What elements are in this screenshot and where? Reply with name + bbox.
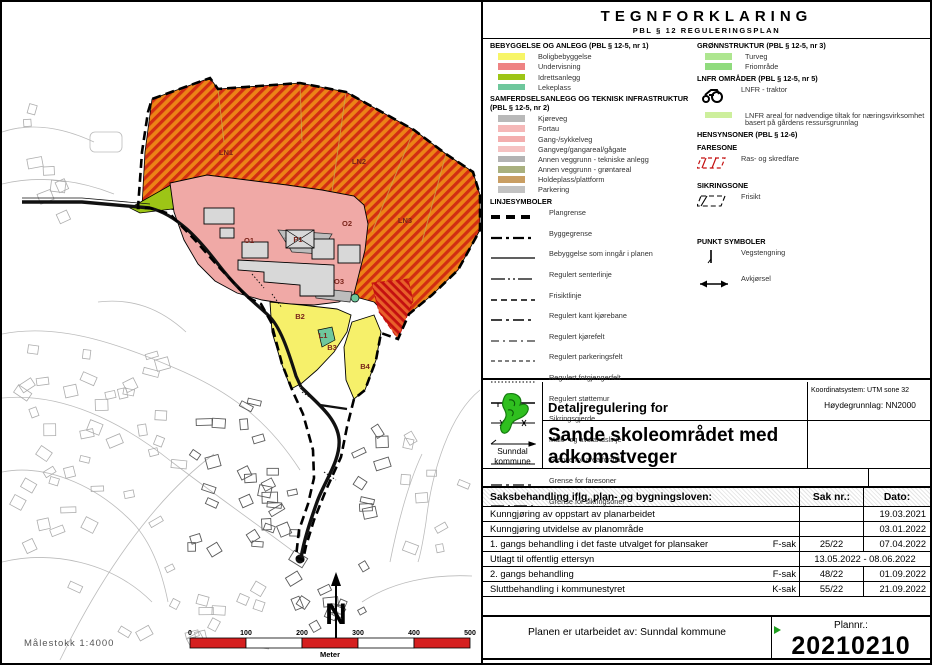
legend-item: Regulert kjørefelt xyxy=(490,333,696,351)
legend-item: Regulert senterlinje xyxy=(490,271,696,289)
scale-bar-segment xyxy=(302,638,358,648)
legend-section-heading: FARESONE xyxy=(697,144,927,153)
legend-section-heading: PUNKT SYMBOLER xyxy=(697,238,927,247)
legend-item-label: Gang-/sykkelveg xyxy=(538,136,592,144)
zone-label-L1: L1 xyxy=(319,331,328,340)
legend-section-heading: LNFR OMRÅDER (PBL § 12-5, nr 5) xyxy=(697,75,927,84)
case-date-range: 13.05.2022 - 08.06.2022 xyxy=(800,552,930,566)
case-desc: Sluttbehandling i kommunestyretK-sak xyxy=(483,582,800,596)
color-chip xyxy=(705,112,732,119)
legend-item: Regulert parkeringsfelt xyxy=(490,353,696,371)
faresone-icon xyxy=(697,155,731,178)
frisikt-icon xyxy=(697,193,731,216)
legend-item: Bebyggelse som inngår i planen xyxy=(490,250,696,268)
case-dato: 21.09.2022 xyxy=(864,582,930,596)
legend-item: Plangrense xyxy=(490,209,696,227)
case-desc: Kunngjøring av oppstart av planarbeidet xyxy=(483,507,800,521)
case-type: F-sak xyxy=(773,569,796,579)
zone-label-O3: O3 xyxy=(334,277,344,286)
header-desc: Saksbehandling iflg. plan- og bygningslo… xyxy=(483,488,800,506)
legend-item-label: Regulert fotgjengerfelt xyxy=(549,374,621,382)
color-chip xyxy=(498,176,525,183)
color-chip xyxy=(498,53,525,60)
line-sample-senterlinje xyxy=(490,271,536,289)
color-chip xyxy=(498,146,525,153)
color-chip xyxy=(498,136,525,143)
header-dato: Dato: xyxy=(864,488,930,506)
plannr-label: Plannr.: xyxy=(772,620,930,631)
legend-item: LNFR areal for nødvendige tiltak for nær… xyxy=(697,112,927,127)
scale-unit-label: Meter xyxy=(320,650,340,659)
color-chip xyxy=(705,63,732,70)
prepared-by: Planen er utarbeidet av: Sunndal kommune xyxy=(483,617,772,658)
legend-item: Undervisning xyxy=(490,63,696,71)
sunndal-kommune-logo xyxy=(493,390,533,440)
vegstengning-icon xyxy=(697,249,731,272)
legend-item: Gang-/sykkelveg xyxy=(490,136,696,144)
case-desc: Kunngjøring utvidelse av planområde xyxy=(483,522,800,536)
color-chip xyxy=(498,74,525,81)
color-chip xyxy=(498,63,525,70)
legend-item: Parkering xyxy=(490,186,696,194)
legend-item: Boligbebyggelse xyxy=(490,53,696,61)
case-table-row: Utlagt til offentlig ettersyn13.05.2022 … xyxy=(483,552,930,567)
map-panel: LN1LN2LN3O1O2O3P1B2B3B4L1 N Målestokk 1:… xyxy=(2,2,483,663)
scale-bar-segment xyxy=(414,638,470,648)
legend-item-label: Undervisning xyxy=(538,63,581,71)
zone-label-LN3: LN3 xyxy=(398,216,412,225)
footer: Planen er utarbeidet av: Sunndal kommune… xyxy=(483,615,930,660)
case-dato: 03.01.2022 xyxy=(864,522,930,536)
case-desc: Utlagt til offentlig ettersyn xyxy=(483,552,800,566)
case-table-row: 1. gangs behandling i det faste utvalget… xyxy=(483,537,930,552)
legend-item: Frisiktlinje xyxy=(490,292,696,310)
scale-text: Målestokk 1:4000 xyxy=(24,638,114,649)
color-chip xyxy=(498,186,525,193)
plan-type: Detaljregulering for xyxy=(548,400,803,415)
logo-text-line2: kommune xyxy=(483,457,542,467)
legend-section-heading: SAMFERDSELSANLEGG OG TEKNISK INFRASTRUKT… xyxy=(490,95,696,112)
legend-item-label: Regulert parkeringsfelt xyxy=(549,353,622,361)
header-saknr: Sak nr.: xyxy=(800,488,864,506)
legend-item: Gangveg/gangareal/gågate xyxy=(490,146,696,154)
line-sample-bebyggelse_plan xyxy=(490,250,536,268)
height-datum: Høydegrunnlag: NN2000 xyxy=(811,400,929,410)
color-chip xyxy=(498,166,525,173)
legend-item: Lekeplass xyxy=(490,84,696,92)
legend-item: LNFR - traktor xyxy=(697,86,927,109)
north-arrow: N xyxy=(325,572,347,647)
legend-item-label: Plangrense xyxy=(549,209,586,217)
line-sample-plangrense xyxy=(490,209,536,227)
logo-text: Sunndal kommune xyxy=(483,447,542,466)
scale-bar-segment xyxy=(246,638,302,648)
plan-sheet: LN1LN2LN3O1O2O3P1B2B3B4L1 N Målestokk 1:… xyxy=(0,0,932,665)
case-desc: 2. gangs behandlingF-sak xyxy=(483,567,800,581)
scale-tick-label: 0 xyxy=(188,630,192,637)
legend-item-label: Annen veggrunn - tekniske anlegg xyxy=(538,156,649,164)
line-sample-kjorefelt xyxy=(490,333,536,351)
north-label: N xyxy=(325,598,347,631)
zone-label-LN1: LN1 xyxy=(219,148,233,157)
legend-item: Annen veggrunn - tekniske anlegg xyxy=(490,156,696,164)
legend-item-label: Lekeplass xyxy=(538,84,571,92)
legend-header: TEGNFORKLARING PBL § 12 REGULERINGSPLAN xyxy=(483,2,930,39)
legend-item-label: Annen veggrunn - grøntareal xyxy=(538,166,631,174)
legend-item-label: Vegstengning xyxy=(741,249,785,257)
legend-item: Friområde xyxy=(697,63,927,71)
case-dato: 19.03.2021 xyxy=(864,507,930,521)
legend-item-label: Fortau xyxy=(538,125,559,133)
legend-column-right: GRØNNSTRUKTUR (PBL § 12-5, nr 3)TurvegFr… xyxy=(697,38,927,298)
case-saknr xyxy=(800,507,864,521)
legend-item-label: Regulert senterlinje xyxy=(549,271,612,279)
case-type: F-sak xyxy=(773,539,796,549)
legend-item-label: Grense for faresoner xyxy=(549,477,616,485)
scale-tick-label: 300 xyxy=(352,630,364,637)
legend-item-label: Parkering xyxy=(538,186,569,194)
legend-item: Turveg xyxy=(697,53,927,61)
legend-item: Annen veggrunn - grøntareal xyxy=(490,166,696,174)
legend-item-label: Boligbebyggelse xyxy=(538,53,592,61)
color-chip xyxy=(705,53,732,60)
legend-item-label: Avkjørsel xyxy=(741,275,771,283)
case-saknr: 48/22 xyxy=(800,567,864,581)
case-saknr xyxy=(800,522,864,536)
legend-item: Byggegrense xyxy=(490,230,696,248)
case-saknr: 25/22 xyxy=(800,537,864,551)
case-type: K-sak xyxy=(772,584,796,594)
legend-item-label: LNFR areal for nødvendige tiltak for nær… xyxy=(745,112,927,127)
case-dato: 01.09.2022 xyxy=(864,567,930,581)
color-chip xyxy=(498,156,525,163)
scale-tick-label: 200 xyxy=(296,630,308,637)
color-chip xyxy=(498,84,525,91)
legend-item-label: Gangveg/gangareal/gågate xyxy=(538,146,626,154)
legend-item-label: Idrettsanlegg xyxy=(538,74,580,82)
case-saknr: 55/22 xyxy=(800,582,864,596)
legend-item: Frisikt xyxy=(697,193,927,216)
zone-label-B3: B3 xyxy=(327,343,337,352)
plannr-value: 20210210 xyxy=(772,632,930,661)
legend-item: Idrettsanlegg xyxy=(490,74,696,82)
avkjorsel-icon xyxy=(697,275,731,298)
legend-item-label: Turveg xyxy=(745,53,767,61)
coordinate-system: Koordinatsystem: UTM sone 32 xyxy=(811,387,929,394)
legend-item-label: LNFR - traktor xyxy=(741,86,787,94)
legend-item-label: Friområde xyxy=(745,63,778,71)
legend-item: Kjøreveg xyxy=(490,115,696,123)
legend-item-label: Regulert kant kjørebane xyxy=(549,312,627,320)
zone-label-B2: B2 xyxy=(295,312,305,321)
zone-label-B4: B4 xyxy=(360,362,370,371)
scale-tick-label: 400 xyxy=(408,630,420,637)
line-sample-parkeringsfelt xyxy=(490,353,536,371)
scale-tick-label: 500 xyxy=(464,630,476,637)
legend-title: TEGNFORKLARING xyxy=(483,8,930,25)
legend-item-label: Bebyggelse som inngår i planen xyxy=(549,250,653,258)
case-dato: 07.04.2022 xyxy=(864,537,930,551)
legend-item: Fortau xyxy=(490,125,696,133)
houses-outlines-dark xyxy=(188,398,391,632)
case-table-row: Kunngjøring av oppstart av planarbeidet1… xyxy=(483,507,930,522)
zone-lekeplass-spot xyxy=(351,294,359,302)
case-table-row: Kunngjøring utvidelse av planområde03.01… xyxy=(483,522,930,537)
legend-section-heading: HENSYNSONER (PBL § 12-6) xyxy=(697,131,927,140)
scale-bar: 0100200300400500Meter xyxy=(188,630,476,659)
legend-item-label: Ras- og skredfare xyxy=(741,155,799,163)
zone-label-LN2: LN2 xyxy=(352,157,366,166)
legend-panel: TEGNFORKLARING PBL § 12 REGULERINGSPLAN … xyxy=(483,2,930,380)
zone-label-P1: P1 xyxy=(293,235,302,244)
case-processing-table: Saksbehandling iflg. plan- og bygningslo… xyxy=(483,486,930,597)
scale-bar-segment xyxy=(190,638,246,648)
legend-item: Regulert kant kjørebane xyxy=(490,312,696,330)
legend-item-label: Regulert kjørefelt xyxy=(549,333,605,341)
case-desc: 1. gangs behandling i det faste utvalget… xyxy=(483,537,800,551)
legend-section-heading: SIKRINGSONE xyxy=(697,182,927,191)
zone-label-O2: O2 xyxy=(342,219,352,228)
legend-item: Avkjørsel xyxy=(697,275,927,298)
case-table-row: Sluttbehandling i kommunestyretK-sak55/2… xyxy=(483,582,930,597)
legend-item-label: Frisikt xyxy=(741,193,760,201)
legend-item-label: Holdeplass/plattform xyxy=(538,176,605,184)
line-sample-byggegrense xyxy=(490,230,536,248)
zoning-map: LN1LN2LN3O1O2O3P1B2B3B4L1 N Målestokk 1:… xyxy=(2,2,481,661)
color-chip xyxy=(498,115,525,122)
zone-label-O1: O1 xyxy=(244,236,254,245)
plannr-cell: Plannr.: 20210210 xyxy=(772,617,930,658)
legend-section-heading: GRØNNSTRUKTUR (PBL § 12-5, nr 3) xyxy=(697,42,927,51)
case-table-row: 2. gangs behandlingF-sak48/2201.09.2022 xyxy=(483,567,930,582)
legend-item: Ras- og skredfare xyxy=(697,155,927,178)
line-sample-kant_kjorebane xyxy=(490,312,536,330)
legend-item-label: Frisiktlinje xyxy=(549,292,581,300)
legend-item-label: Sikringsgjerde xyxy=(549,415,595,423)
scale-bar-segment xyxy=(358,638,414,648)
legend-item: Holdeplass/plattform xyxy=(490,176,696,184)
color-chip xyxy=(498,125,525,132)
municipality-logo-cell: Sunndal kommune xyxy=(483,382,542,486)
legend-item: Vegstengning xyxy=(697,249,927,272)
scale-tick-label: 100 xyxy=(240,630,252,637)
case-table-header: Saksbehandling iflg. plan- og bygningslo… xyxy=(483,488,930,507)
tractor-icon xyxy=(697,86,731,109)
legend-item-label: Byggegrense xyxy=(549,230,592,238)
zone-bolig-west xyxy=(270,302,351,389)
plan-title: Sande skoleområdet med adkomstveger xyxy=(548,425,806,469)
legend-section-heading: LINJESYMBOLER xyxy=(490,198,696,207)
legend-section-heading: BEBYGGELSE OG ANLEGG (PBL § 12-5, nr 1) xyxy=(490,42,696,51)
legend-item-label: Kjøreveg xyxy=(538,115,567,123)
line-sample-frisiktlinje xyxy=(490,292,536,310)
legend-subtitle: PBL § 12 REGULERINGSPLAN xyxy=(483,26,930,35)
